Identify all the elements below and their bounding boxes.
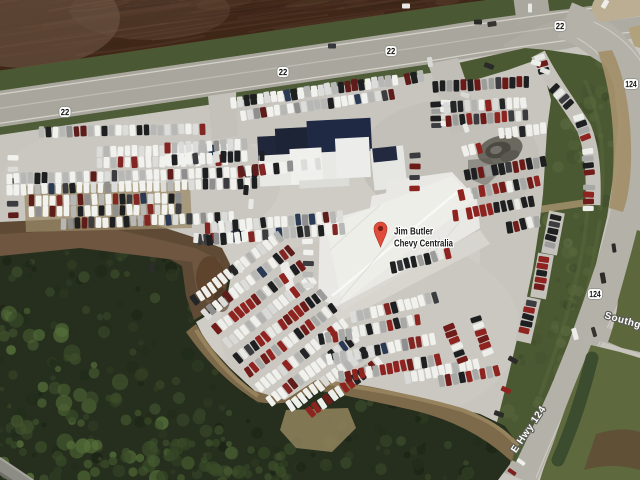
svg-text:124: 124 <box>625 79 637 89</box>
svg-text:22: 22 <box>61 107 70 117</box>
svg-text:124: 124 <box>589 289 601 299</box>
svg-text:Chevy Centralia: Chevy Centralia <box>394 239 453 250</box>
svg-text:22: 22 <box>556 21 565 31</box>
svg-text:22: 22 <box>279 67 288 77</box>
svg-text:Jim Butler: Jim Butler <box>394 227 433 238</box>
svg-text:22: 22 <box>387 46 396 56</box>
